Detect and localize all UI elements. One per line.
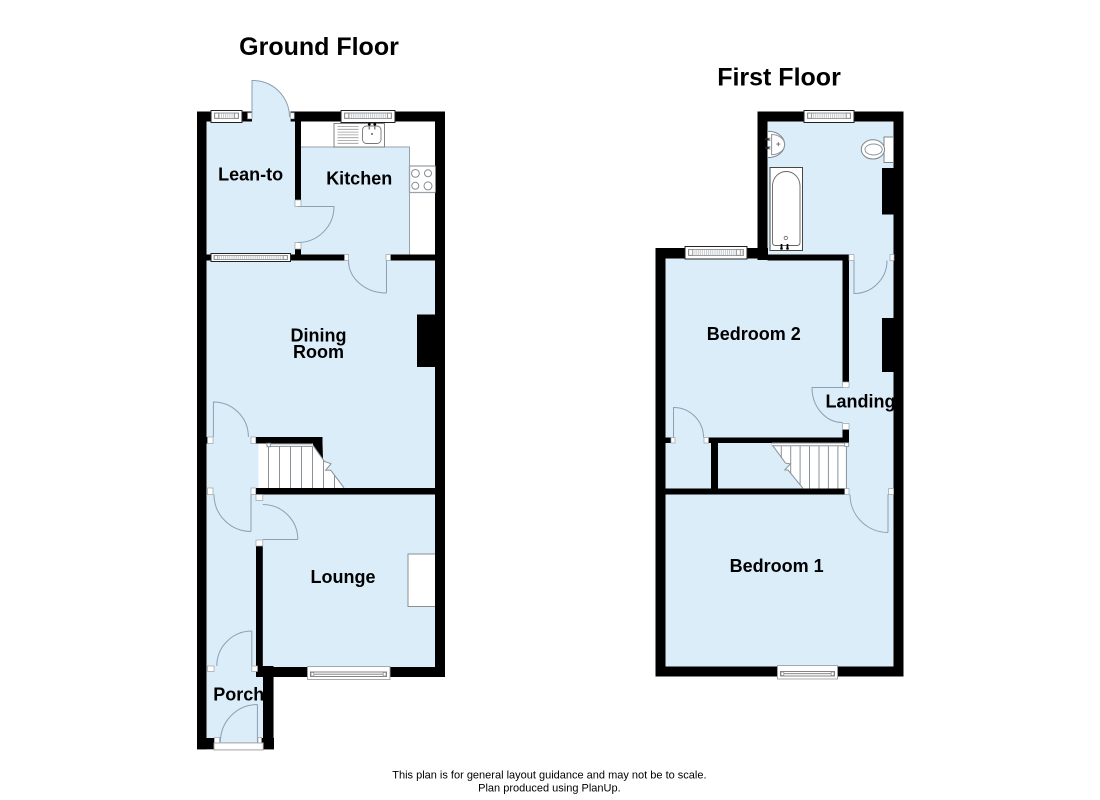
svg-text:Porch: Porch — [213, 685, 264, 705]
svg-text:Kitchen: Kitchen — [326, 169, 392, 189]
svg-text:Room: Room — [293, 342, 344, 362]
svg-text:Lean-to: Lean-to — [218, 164, 283, 184]
svg-text:Bedroom 2: Bedroom 2 — [707, 324, 801, 344]
svg-text:First Floor: First Floor — [717, 63, 841, 91]
svg-text:This plan is for general layou: This plan is for general layout guidance… — [392, 769, 706, 781]
svg-text:Lounge: Lounge — [311, 567, 376, 587]
svg-text:Bedroom 1: Bedroom 1 — [730, 556, 824, 576]
svg-text:Plan produced using PlanUp.: Plan produced using PlanUp. — [478, 782, 620, 794]
svg-text:Ground Floor: Ground Floor — [239, 33, 399, 61]
svg-text:Landing: Landing — [826, 392, 896, 412]
